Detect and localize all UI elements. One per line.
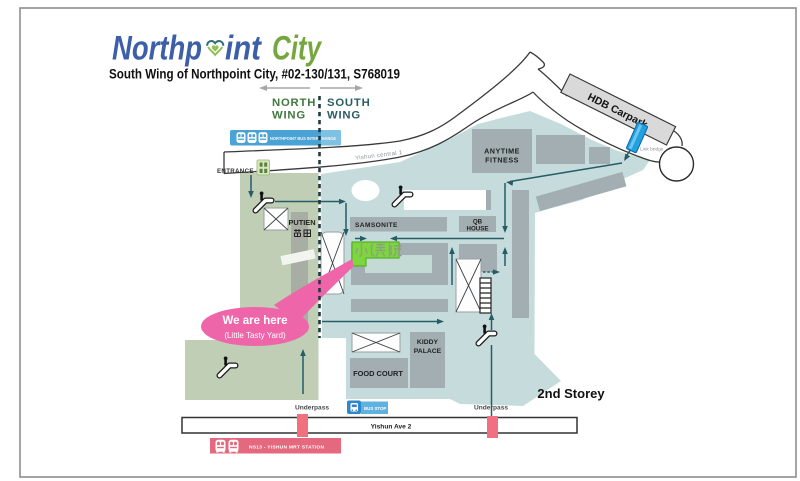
svg-text:KIDDY: KIDDY bbox=[417, 339, 439, 346]
svg-text:Underpass: Underpass bbox=[295, 405, 329, 412]
svg-text:NS13 - YISHUN MRT STATION: NS13 - YISHUN MRT STATION bbox=[249, 445, 324, 451]
svg-text:NORTH: NORTH bbox=[272, 97, 316, 109]
svg-text:ANYTIME: ANYTIME bbox=[484, 147, 520, 156]
svg-text:HOUSE: HOUSE bbox=[466, 226, 488, 233]
svg-text:South Wing of Northpoint City,: South Wing of Northpoint City, #02-130/1… bbox=[109, 67, 400, 82]
svg-text:FITNESS: FITNESS bbox=[485, 156, 519, 165]
svg-text:Underpass: Underpass bbox=[474, 405, 508, 412]
svg-text:int: int bbox=[225, 30, 262, 68]
svg-text:FOOD COURT: FOOD COURT bbox=[353, 369, 403, 378]
svg-text:ENTRANCE: ENTRANCE bbox=[217, 168, 254, 175]
svg-text:WING: WING bbox=[272, 110, 306, 122]
svg-text:2nd Storey: 2nd Storey bbox=[537, 386, 605, 401]
svg-text:PALACE: PALACE bbox=[414, 348, 442, 355]
svg-text:NORTHPOINT BUS INTERCHANGE: NORTHPOINT BUS INTERCHANGE bbox=[270, 136, 336, 141]
svg-text:Northp: Northp bbox=[112, 30, 202, 68]
svg-text:(Little Tasty Yard): (Little Tasty Yard) bbox=[224, 331, 286, 340]
svg-text:PUTIEN: PUTIEN bbox=[288, 218, 315, 227]
svg-text:QB: QB bbox=[473, 219, 483, 226]
svg-text:BUS STOP: BUS STOP bbox=[364, 406, 386, 411]
svg-text:SOUTH: SOUTH bbox=[327, 97, 371, 109]
svg-text:We are here: We are here bbox=[223, 315, 288, 327]
svg-text:WING: WING bbox=[327, 110, 361, 122]
svg-text:City: City bbox=[272, 30, 323, 68]
svg-text:SAMSONITE: SAMSONITE bbox=[355, 222, 398, 229]
svg-text:Link bridge: Link bridge bbox=[640, 147, 664, 153]
svg-text:Yishun Ave 2: Yishun Ave 2 bbox=[371, 424, 412, 431]
